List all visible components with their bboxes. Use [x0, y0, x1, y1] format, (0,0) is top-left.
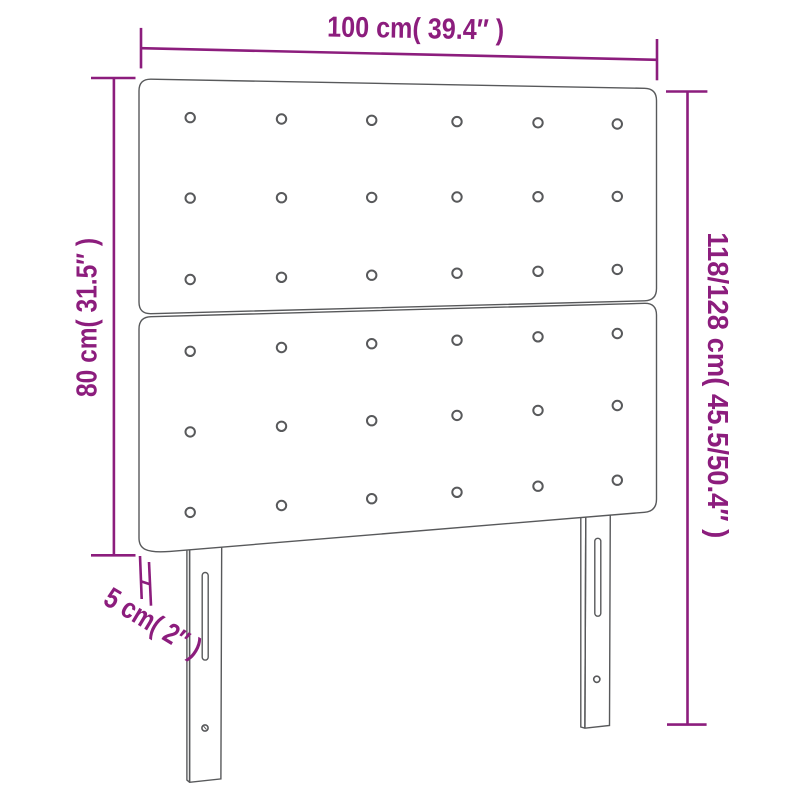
- svg-text:80 cm( 31.5″ ): 80 cm( 31.5″ ): [72, 238, 104, 397]
- svg-text:118/128 cm( 45.5/50.4″ ): 118/128 cm( 45.5/50.4″ ): [701, 232, 733, 538]
- svg-text:100 cm( 39.4″ ): 100 cm( 39.4″ ): [327, 11, 505, 46]
